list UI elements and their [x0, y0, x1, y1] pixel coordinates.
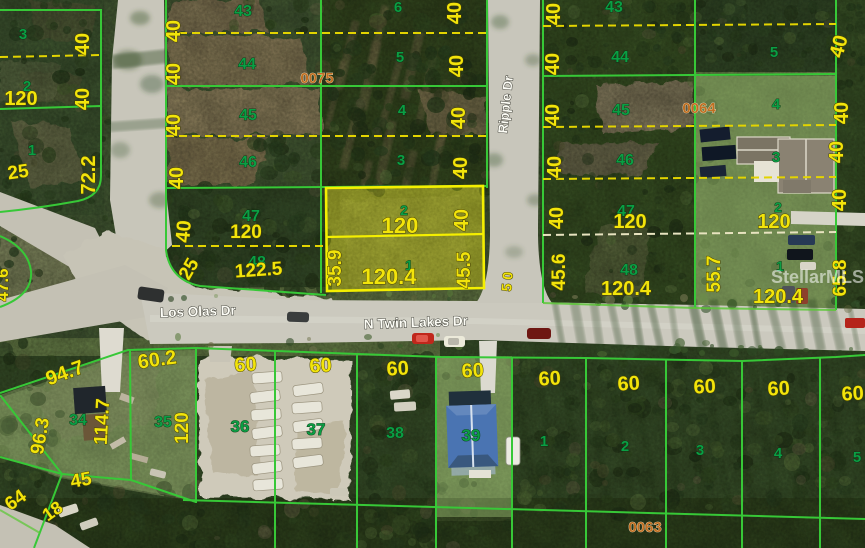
- svg-text:120.4: 120.4: [753, 286, 804, 308]
- svg-text:72.2: 72.2: [78, 156, 100, 195]
- svg-text:60: 60: [841, 382, 864, 405]
- svg-text:120: 120: [230, 222, 262, 243]
- svg-text:40: 40: [542, 104, 564, 126]
- svg-text:120.4: 120.4: [361, 264, 417, 289]
- svg-text:43: 43: [605, 0, 623, 16]
- svg-text:45: 45: [612, 102, 630, 119]
- svg-text:45: 45: [69, 468, 94, 492]
- svg-text:39: 39: [462, 426, 481, 445]
- svg-text:5: 5: [770, 44, 778, 61]
- svg-text:40: 40: [444, 2, 466, 24]
- svg-text:120: 120: [382, 213, 419, 238]
- svg-text:5: 5: [853, 449, 861, 466]
- svg-text:40: 40: [166, 167, 188, 189]
- svg-text:3: 3: [772, 149, 780, 166]
- svg-text:120: 120: [172, 412, 193, 444]
- svg-text:40: 40: [446, 55, 468, 77]
- svg-text:120: 120: [613, 211, 646, 233]
- svg-text:3: 3: [397, 152, 405, 169]
- svg-text:40: 40: [546, 207, 568, 229]
- svg-text:60: 60: [617, 372, 640, 395]
- svg-text:122.5: 122.5: [234, 258, 283, 282]
- svg-text:40: 40: [163, 63, 185, 85]
- svg-text:40: 40: [163, 114, 185, 136]
- svg-text:45.5: 45.5: [454, 251, 475, 288]
- svg-text:60: 60: [386, 357, 409, 380]
- svg-text:60: 60: [538, 367, 561, 390]
- svg-text:120: 120: [757, 211, 790, 233]
- svg-text:45.6: 45.6: [549, 254, 570, 291]
- svg-text:5: 5: [396, 49, 404, 66]
- svg-text:120: 120: [4, 88, 37, 110]
- svg-text:114.7: 114.7: [91, 398, 114, 446]
- svg-text:4: 4: [774, 445, 783, 462]
- svg-text:37: 37: [307, 420, 326, 439]
- svg-text:44: 44: [611, 49, 629, 66]
- svg-text:40: 40: [163, 20, 185, 42]
- svg-text:35.9: 35.9: [325, 250, 346, 287]
- svg-text:55.7: 55.7: [704, 256, 725, 293]
- svg-text:4: 4: [398, 102, 407, 119]
- svg-text:6: 6: [394, 0, 402, 16]
- svg-text:StellarMLS: StellarMLS: [771, 267, 864, 287]
- svg-text:1: 1: [540, 433, 548, 450]
- svg-text:60: 60: [234, 353, 258, 376]
- svg-text:25: 25: [6, 161, 30, 185]
- svg-text:0075: 0075: [300, 70, 333, 87]
- svg-text:47.6: 47.6: [0, 268, 12, 301]
- svg-text:35: 35: [154, 414, 172, 431]
- svg-text:4: 4: [772, 96, 781, 113]
- svg-text:40: 40: [544, 156, 566, 178]
- svg-text:43: 43: [234, 3, 252, 20]
- svg-text:40: 40: [72, 88, 94, 110]
- svg-text:1: 1: [28, 142, 36, 159]
- svg-text:48: 48: [620, 262, 638, 279]
- svg-text:40: 40: [542, 53, 564, 75]
- svg-text:40: 40: [448, 107, 470, 129]
- svg-text:40: 40: [451, 209, 473, 231]
- svg-text:60: 60: [309, 354, 333, 377]
- svg-text:3: 3: [696, 442, 704, 459]
- svg-text:40: 40: [829, 189, 851, 211]
- svg-text:46: 46: [239, 154, 257, 171]
- svg-text:0064: 0064: [682, 100, 716, 117]
- svg-text:5 0: 5 0: [498, 271, 516, 292]
- svg-text:60: 60: [461, 359, 484, 382]
- svg-text:60: 60: [767, 377, 790, 400]
- svg-text:60: 60: [693, 375, 716, 398]
- svg-text:Los Olas Dr: Los Olas Dr: [160, 303, 237, 321]
- svg-text:3: 3: [19, 26, 27, 43]
- svg-text:34: 34: [69, 412, 87, 429]
- svg-text:40: 40: [826, 141, 848, 163]
- svg-text:2: 2: [621, 438, 629, 455]
- svg-text:46: 46: [616, 152, 634, 169]
- svg-text:45: 45: [239, 107, 257, 124]
- svg-text:40: 40: [72, 33, 94, 55]
- svg-text:38: 38: [386, 425, 404, 442]
- svg-text:36: 36: [231, 417, 250, 436]
- svg-text:120.4: 120.4: [601, 278, 652, 300]
- svg-text:44: 44: [238, 56, 256, 73]
- svg-text:40: 40: [172, 219, 196, 243]
- svg-text:40: 40: [543, 3, 565, 25]
- svg-text:40: 40: [450, 157, 472, 179]
- svg-text:0063: 0063: [628, 519, 661, 536]
- svg-text:40: 40: [831, 102, 853, 124]
